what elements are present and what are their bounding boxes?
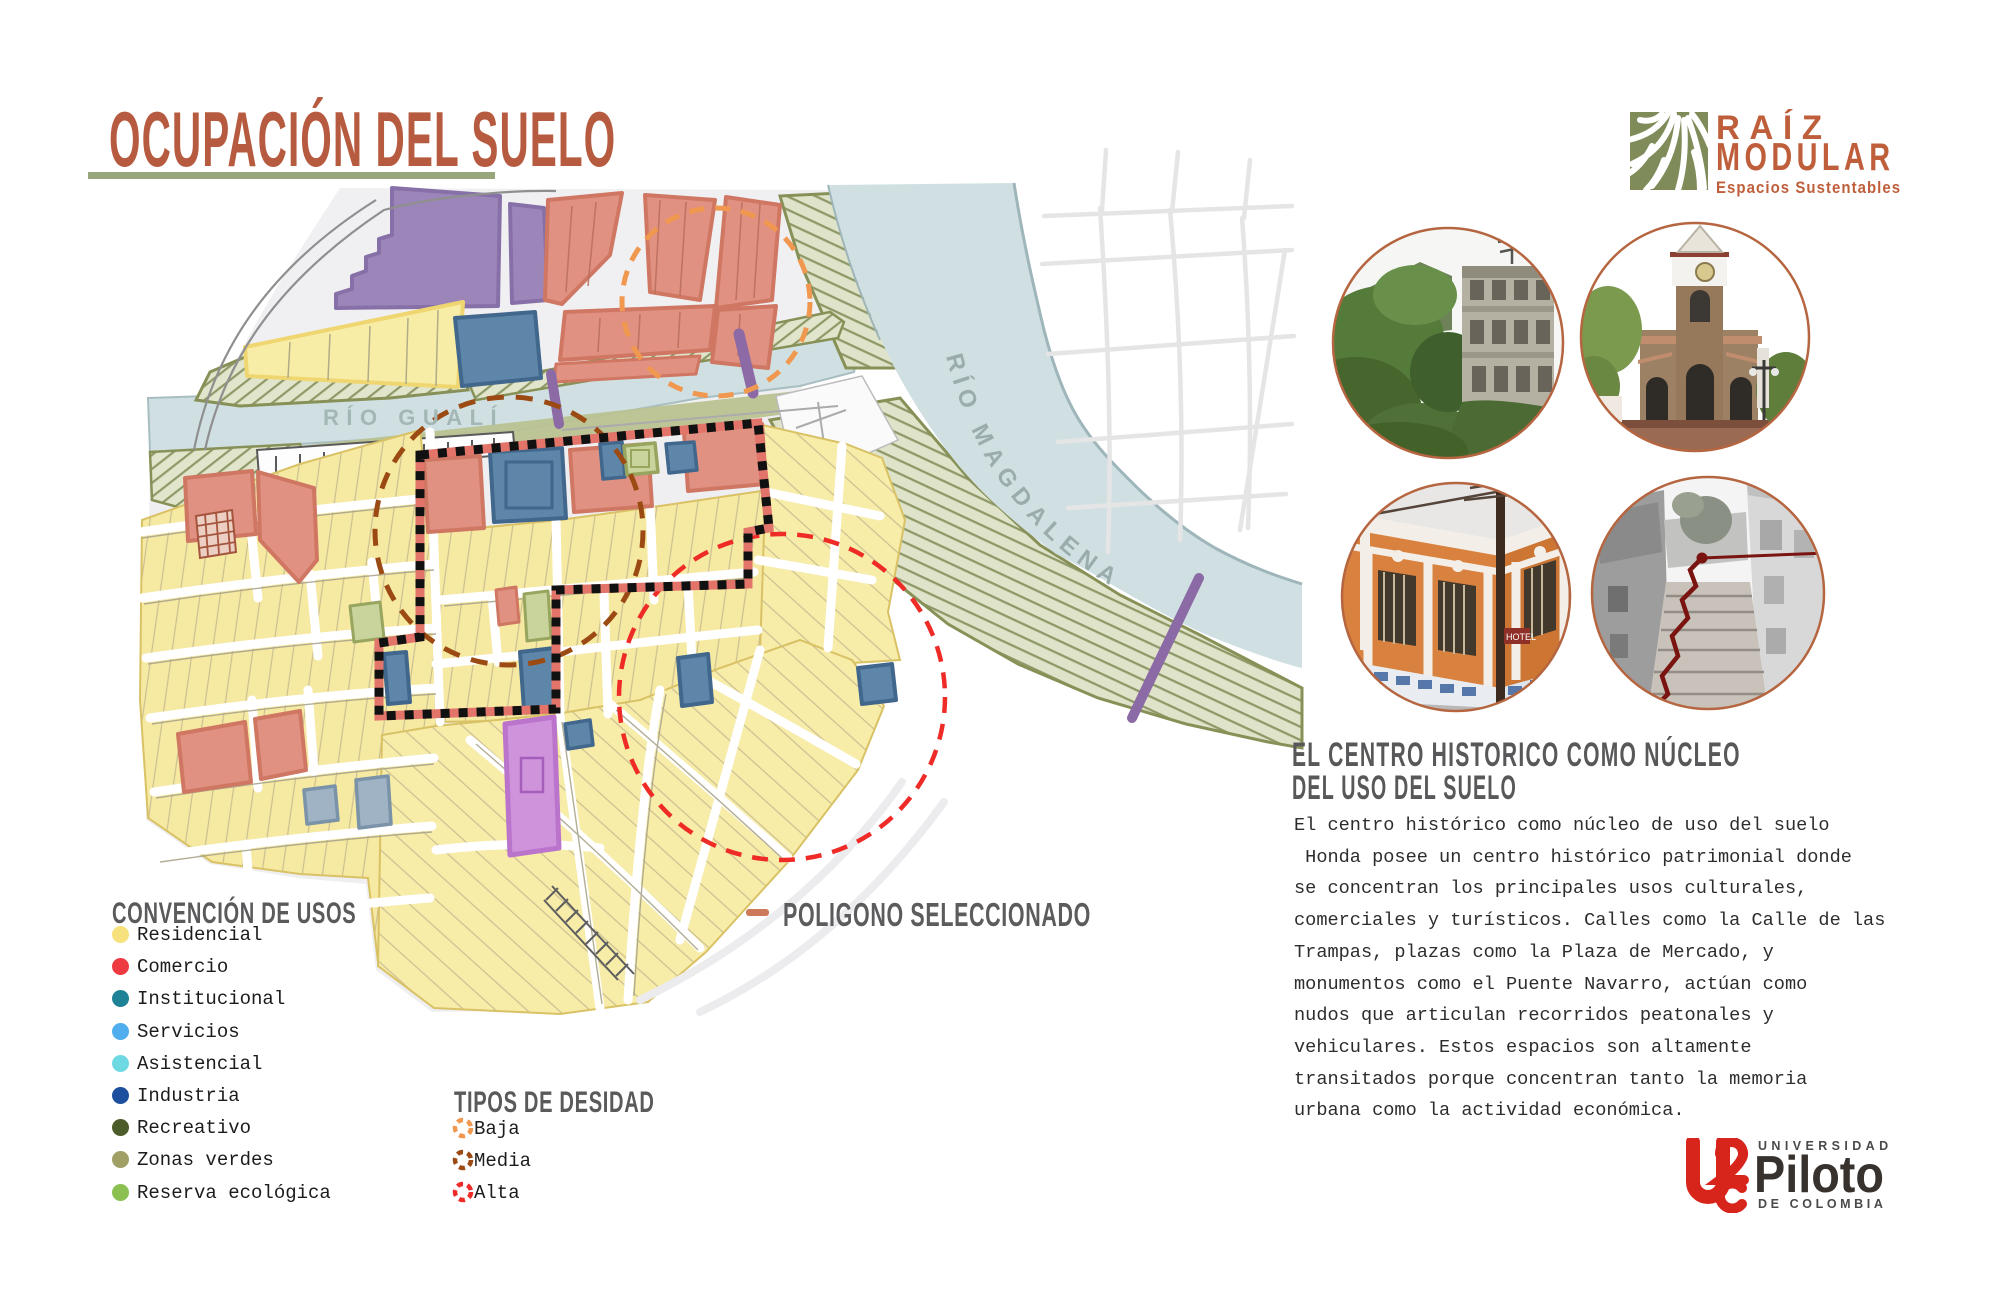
svg-text:HOTEL: HOTEL: [1506, 632, 1536, 642]
svg-text:RÍO GUALÍ: RÍO GUALÍ: [323, 405, 504, 430]
